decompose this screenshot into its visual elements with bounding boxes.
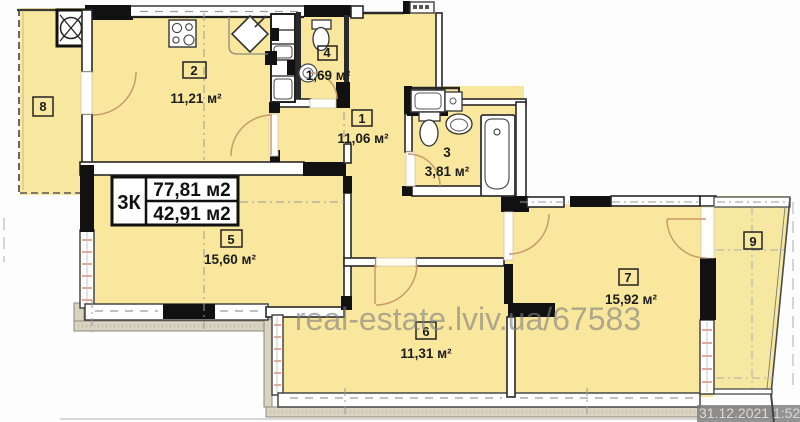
- svg-text:11,06 м²: 11,06 м²: [337, 131, 389, 146]
- svg-text:3,81 м²: 3,81 м²: [425, 164, 470, 179]
- svg-text:31.12.2021 1:52: 31.12.2021 1:52: [699, 405, 800, 421]
- svg-text:15,60 м²: 15,60 м²: [204, 252, 257, 267]
- svg-text:5: 5: [227, 232, 234, 247]
- svg-text:4: 4: [323, 45, 331, 60]
- svg-text:9: 9: [749, 234, 756, 249]
- svg-text:11,21 м²: 11,21 м²: [170, 91, 222, 106]
- svg-text:real-estate.lviv.ua/67583: real-estate.lviv.ua/67583: [295, 301, 641, 337]
- svg-text:1,69 м²: 1,69 м²: [306, 68, 351, 83]
- svg-text:7: 7: [624, 270, 631, 285]
- svg-text:3: 3: [443, 145, 451, 160]
- svg-text:77,81 м2: 77,81 м2: [153, 180, 230, 201]
- svg-text:3К: 3К: [117, 192, 141, 214]
- svg-text:42,91 м2: 42,91 м2: [153, 204, 230, 225]
- svg-text:11,31 м²: 11,31 м²: [400, 346, 452, 361]
- svg-text:2: 2: [190, 63, 197, 78]
- svg-text:8: 8: [39, 99, 46, 114]
- svg-text:1: 1: [358, 111, 365, 126]
